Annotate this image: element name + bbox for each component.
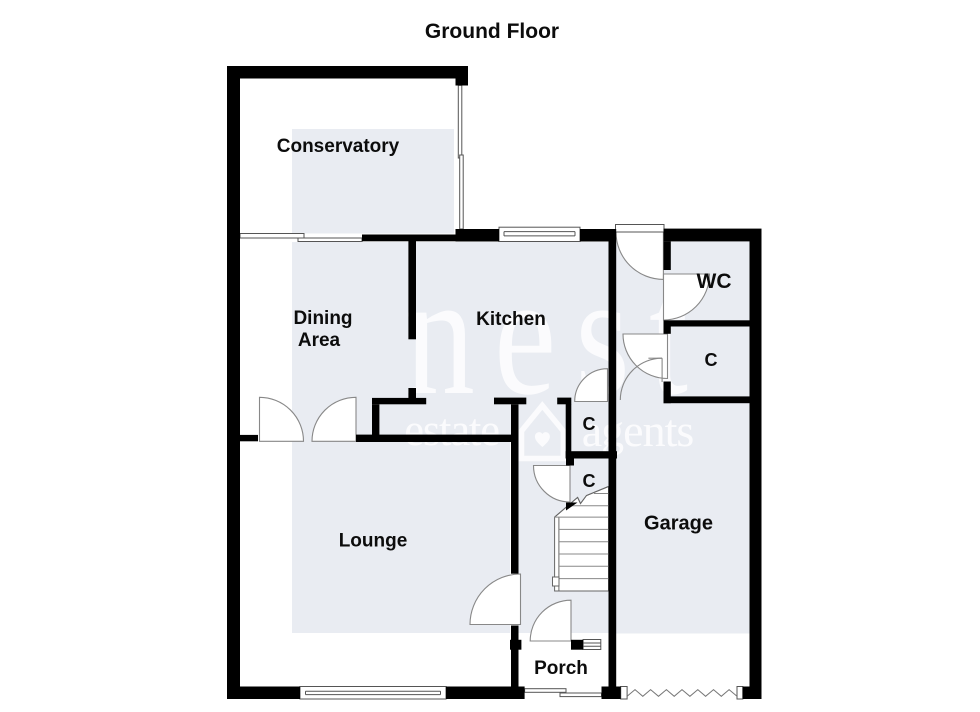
svg-text:Conservatory: Conservatory bbox=[277, 136, 400, 157]
svg-text:C: C bbox=[583, 414, 596, 434]
svg-text:Garage: Garage bbox=[644, 513, 713, 535]
svg-text:C: C bbox=[705, 350, 718, 370]
svg-text:Dining: Dining bbox=[293, 308, 352, 329]
svg-text:estate: estate bbox=[404, 405, 499, 455]
svg-text:WC: WC bbox=[697, 270, 732, 293]
svg-text:C: C bbox=[583, 471, 596, 491]
svg-text:Porch: Porch bbox=[534, 658, 588, 679]
svg-text:Kitchen: Kitchen bbox=[476, 309, 546, 330]
svg-text:Area: Area bbox=[298, 330, 341, 351]
svg-text:agents: agents bbox=[582, 405, 694, 456]
svg-text:Lounge: Lounge bbox=[339, 531, 408, 552]
svg-text:Ground Floor: Ground Floor bbox=[425, 20, 559, 43]
